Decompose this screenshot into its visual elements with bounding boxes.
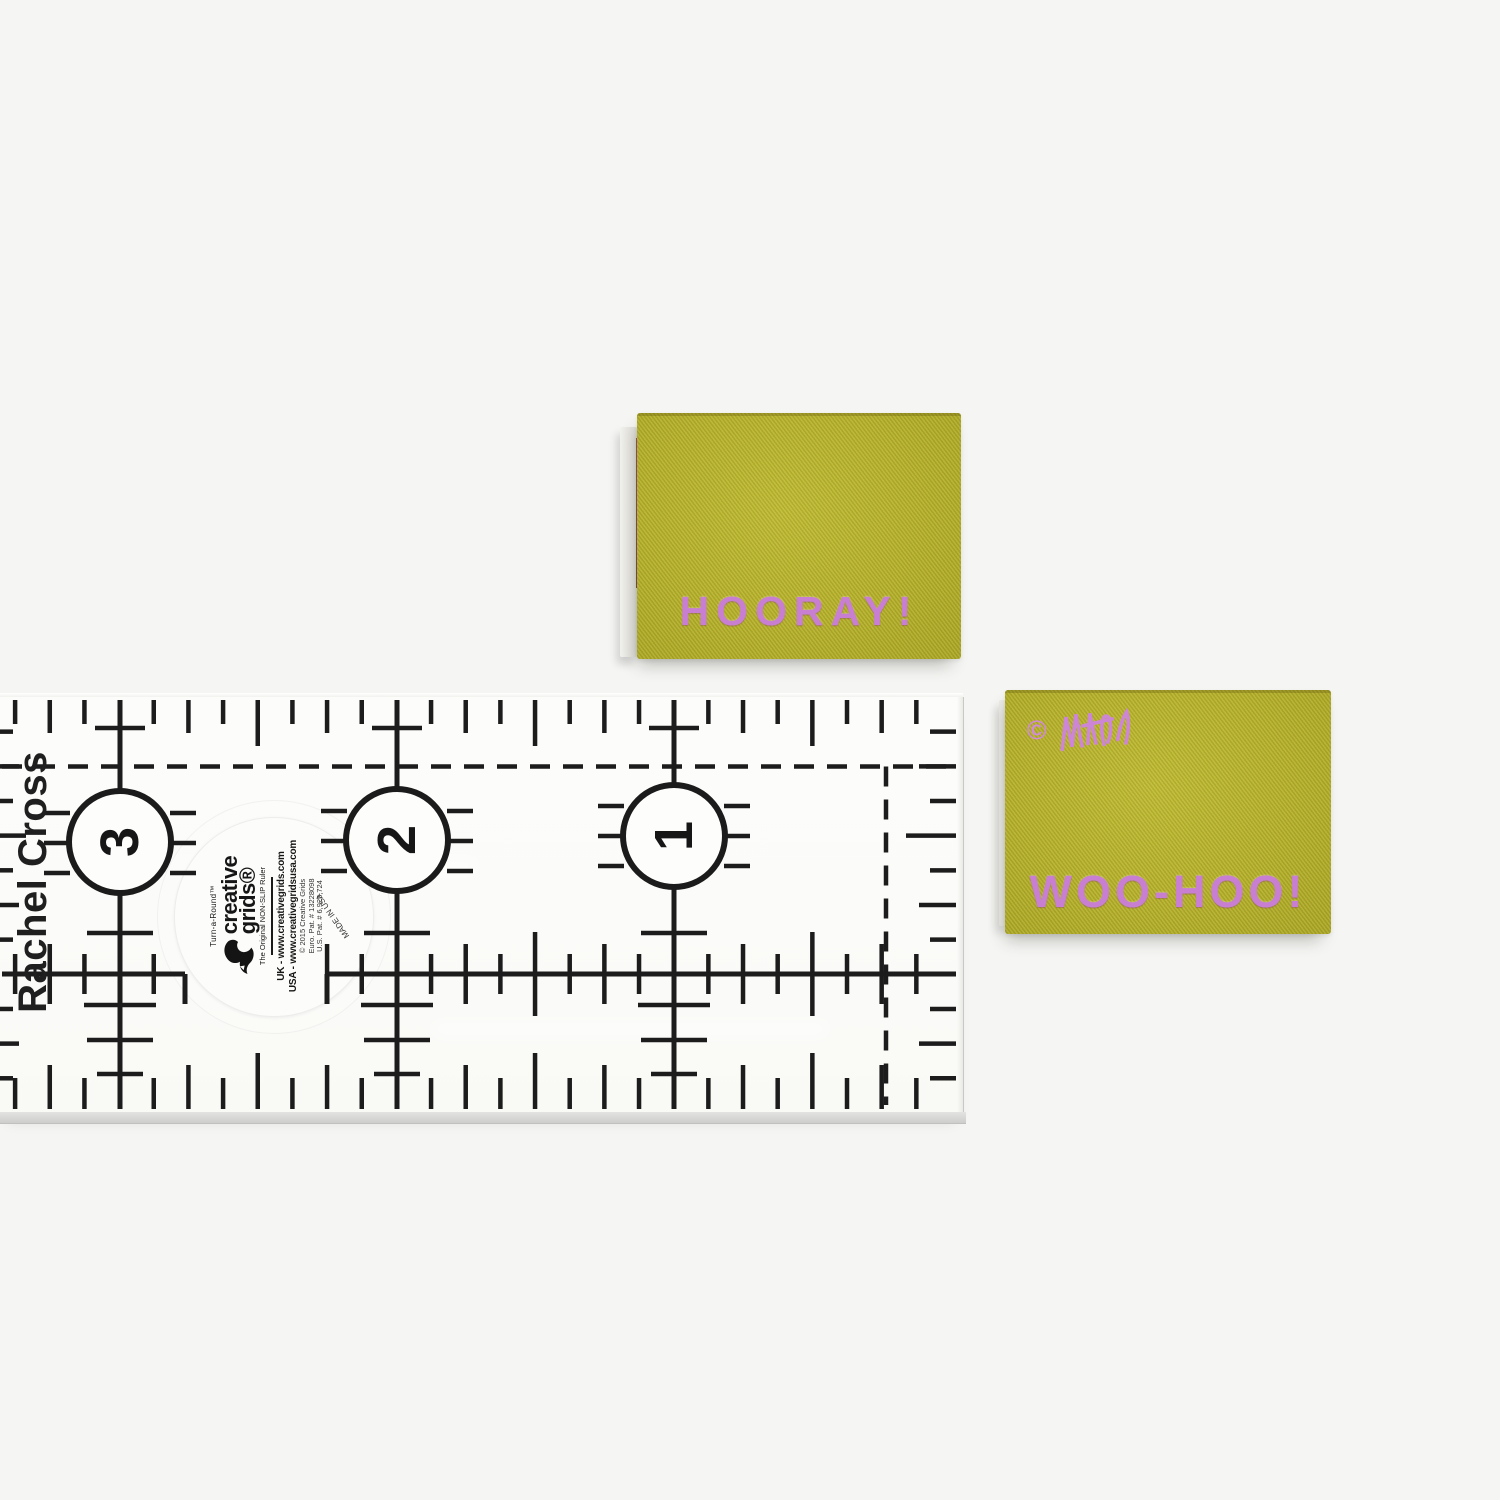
hooray-label-folded-backing: [620, 427, 637, 657]
ruler-bottom-bevel: [0, 1112, 966, 1124]
product-photo: Turn-a-Round™ creative grids® The Origin…: [0, 0, 1500, 1500]
ruler-inch-marker-1: 1: [620, 782, 728, 890]
hooray-text: HOORAY!: [637, 588, 961, 635]
maker-signature: ©: [1025, 698, 1139, 764]
inch-number: 2: [370, 825, 424, 855]
ruler-right-bevel: [957, 697, 964, 1112]
hooray-label: HOORAY!: [637, 413, 961, 659]
ruler-grid-marks: [0, 697, 963, 1112]
woohoo-text: WOO-HOO!: [1005, 866, 1331, 918]
inch-number: 3: [93, 827, 147, 857]
inch-number: 1: [647, 821, 701, 851]
ruler-inch-marker-3: 3: [66, 788, 174, 896]
woohoo-label: © WOO-HOO!: [1005, 690, 1331, 934]
ruler-inch-marker-2: 2: [343, 786, 451, 894]
ruler-watermark-text: Rachel Cross: [10, 753, 56, 1011]
signature-scribble-icon: [1049, 698, 1139, 762]
copyright-symbol: ©: [1026, 716, 1048, 744]
